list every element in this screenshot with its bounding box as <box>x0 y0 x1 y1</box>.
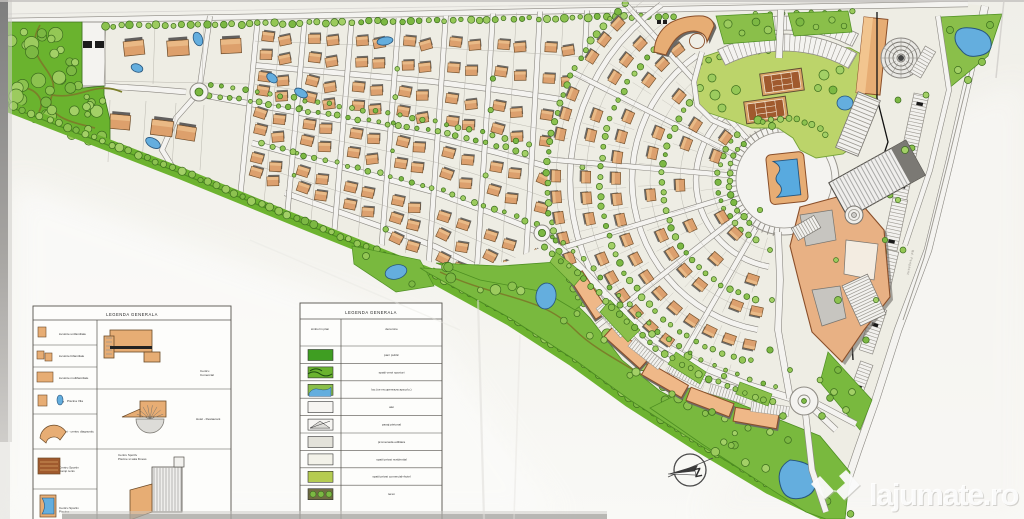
svg-text:LEGENDA GENERALA: LEGENDA GENERALA <box>106 312 158 317</box>
svg-text:locuinte multifamiliale: locuinte multifamiliale <box>59 376 89 380</box>
svg-text:teren: teren <box>388 492 395 496</box>
svg-text:Hotel - Restaurant: Hotel - Restaurant <box>196 417 221 421</box>
svg-text:Camp tenis: Camp tenis <box>59 469 75 473</box>
svg-text:Piscine si sala fitness: Piscine si sala fitness <box>118 457 147 461</box>
svg-text:alei: alei <box>389 405 394 409</box>
svg-text:lajumate.ro: lajumate.ro <box>869 477 1018 512</box>
svg-text:promenada edilitara: promenada edilitara <box>378 440 406 444</box>
svg-text:spatii privat comercial+hotel: spatii privat comercial+hotel <box>372 475 411 479</box>
svg-text:simbol in plan: simbol in plan <box>311 327 330 331</box>
svg-text:pasaj pietonal: pasaj pietonal <box>382 423 401 427</box>
svg-text:locuinte unifamiliale: locuinte unifamiliale <box>59 332 86 336</box>
svg-text:parc public: parc public <box>384 353 399 357</box>
svg-text:Piscina Vila: Piscina Vila <box>67 399 83 403</box>
svg-text:denumire: denumire <box>385 327 398 331</box>
svg-text:locuinte bifamiliale: locuinte bifamiliale <box>59 354 85 358</box>
svg-text:Comercial: Comercial <box>200 373 214 377</box>
svg-text:LEGENDA GENERALA: LEGENDA GENERALA <box>345 310 397 315</box>
svg-text:lac (se recupereaza apa plu.): lac (se recupereaza apa plu.) <box>371 388 411 392</box>
svg-text:spatii privat rezidential: spatii privat rezidential <box>376 457 407 461</box>
svg-text:spatii verzi sporturi: spatii verzi sporturi <box>379 370 405 374</box>
